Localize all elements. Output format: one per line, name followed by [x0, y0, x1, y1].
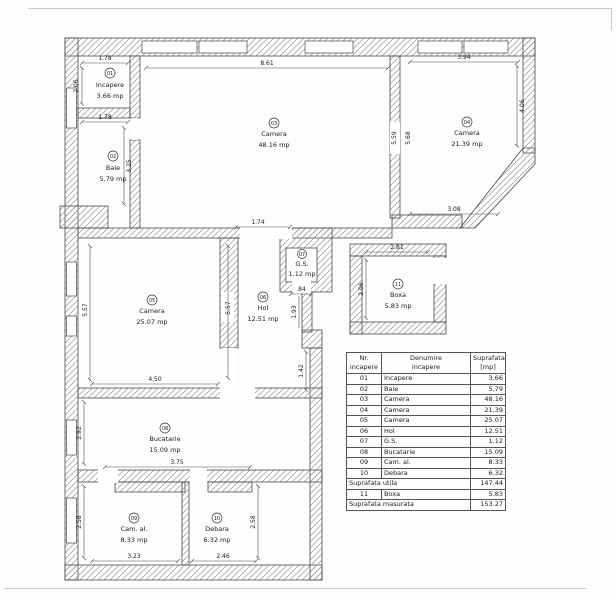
cell-name: Boxa — [382, 489, 471, 500]
dim-line — [80, 66, 84, 106]
total-utila-label: Suprafata utila — [347, 479, 471, 490]
cell-nr: 01 — [347, 374, 382, 385]
cam-al-door-opening — [98, 469, 118, 483]
wall-diagonal — [460, 148, 535, 228]
dim-label: 2.58 — [250, 515, 257, 529]
window — [67, 88, 77, 128]
room-label-hol: 06 Hol 12.51 mp — [247, 292, 278, 323]
room-name: Boxa — [390, 291, 406, 299]
wall-boxa-bottom — [350, 322, 446, 334]
room-area: 5.79 mp — [100, 175, 127, 183]
camera05-door-opening — [222, 348, 236, 388]
cell-name: Camera — [382, 395, 471, 406]
cell-name: Incapere — [382, 374, 471, 385]
dim-label: 5.59 — [391, 131, 398, 145]
cell-area: 8.33 — [471, 458, 506, 469]
wall-below-gs — [302, 292, 312, 332]
table-row: 05 Camera 25.07 — [347, 416, 506, 427]
cell-name: Hol — [382, 426, 471, 437]
room-name: Camera — [139, 307, 165, 315]
wall-camera04-bottom — [392, 215, 462, 228]
dim-label: 3.75 — [170, 459, 184, 466]
dim-label: 3.23 — [127, 553, 141, 560]
room-name: Baie — [106, 164, 120, 172]
window — [67, 316, 77, 336]
room-number: 01 — [107, 71, 113, 77]
dim-label: 1.42 — [298, 364, 305, 378]
room-area: 5.83 mp — [385, 302, 412, 310]
window — [67, 498, 77, 543]
table-header-row: Nr. incapere Denumire incapere Suprafata… — [347, 353, 506, 374]
room-area: 12.51 mp — [247, 315, 278, 323]
cell-name: Bucatarie — [382, 447, 471, 458]
window — [464, 41, 508, 53]
room-label-camera03: 03 Camera 48.16 mp — [258, 118, 289, 149]
table-row: 02 Baie 5.79 — [347, 384, 506, 395]
wall-step — [302, 330, 322, 348]
dim-label: .84 — [296, 286, 306, 293]
cell-nr: 08 — [347, 447, 382, 458]
header-nr: Nr. incapere — [347, 353, 382, 374]
wall-bucatarie-top — [78, 388, 322, 398]
dim-label: 5.57 — [82, 303, 89, 317]
dim-label: 1.93 — [291, 305, 298, 319]
room-name: Camera — [261, 130, 287, 138]
room-number: 04 — [464, 120, 470, 126]
wall-incapere-right — [130, 56, 140, 118]
table-row: 10 Debara 6.32 — [347, 468, 506, 479]
cell-area: 6.32 — [471, 468, 506, 479]
room-name: Incapere — [96, 81, 124, 89]
room-area: 1.12 mp — [289, 270, 316, 278]
dim-label: 3.25 — [126, 159, 133, 173]
dim-label: 4.06 — [519, 99, 526, 113]
wall-bottom — [65, 565, 322, 580]
total-masurata-value: 153.27 — [471, 500, 506, 511]
room-label-boxa: 11 Boxa 5.83 mp — [385, 279, 412, 310]
cell-area: 48.16 — [471, 395, 506, 406]
boxa-door-opening — [433, 258, 447, 284]
cell-name: Cam. al. — [382, 458, 471, 469]
dim-label: 2.46 — [216, 553, 230, 560]
wall-right-lower — [310, 348, 322, 580]
room-number: 10 — [214, 516, 220, 522]
room-number: 02 — [110, 154, 116, 160]
room-area: 3.66 mp — [97, 92, 124, 100]
room-number: 03 — [271, 121, 277, 127]
table-row-boxa: 11 Boxa 5.83 — [347, 489, 506, 500]
dim-label: 2.58 — [76, 515, 83, 529]
room-area: 25.07 mp — [136, 318, 167, 326]
cell-area: 1.12 — [471, 437, 506, 448]
dim-label: 2.81 — [390, 244, 404, 251]
room-label-incapere: 01 Incapere 3.66 mp — [96, 68, 124, 100]
cell-nr: 10 — [347, 468, 382, 479]
cell-name: Baie — [382, 384, 471, 395]
dim-label: 1.74 — [251, 219, 265, 226]
cell-area: 5.79 — [471, 384, 506, 395]
window — [67, 262, 77, 296]
room-label-cam-al: 09 Cam. al. 8.33 mp — [121, 513, 148, 544]
cell-area: 25.07 — [471, 416, 506, 427]
wall-pier-left — [60, 206, 108, 228]
closet-block-debara — [208, 482, 252, 492]
wall-cam-al-debara — [182, 482, 189, 565]
room-label-camera04: 04 Camera 21.39 mp — [451, 117, 482, 148]
cell-name: Debara — [382, 468, 471, 479]
cell-name: Camera — [382, 416, 471, 427]
cell-nr: 04 — [347, 405, 382, 416]
room-number: 07 — [299, 252, 305, 258]
room-label-baie: 02 Baie 5.79 mp — [100, 151, 127, 183]
window — [142, 41, 197, 53]
room-label-bucatarie: 08 Bucatarie 15.09 mp — [149, 423, 180, 454]
room-number: 09 — [131, 516, 137, 522]
wall-baie-right — [130, 140, 140, 228]
room-name: Bucatarie — [149, 435, 180, 443]
wall-right-upper — [523, 38, 535, 153]
table-total-row-utila: Suprafata utila 147.44 — [347, 479, 506, 490]
floor-plan: 1.78 2.06 1.78 3.25 8.61 3.94 4.06 3.08 … — [0, 0, 616, 600]
cell-nr: 06 — [347, 426, 382, 437]
hol-bucatarie-opening — [220, 387, 255, 399]
dim-label: 2.06 — [358, 282, 365, 296]
room-name: G.S. — [295, 260, 308, 268]
room-name: Debara — [205, 525, 229, 533]
baie-door-opening — [132, 118, 138, 140]
header-suprafata: Suprafata [mp] — [471, 353, 506, 374]
dim-label: 2.06 — [73, 79, 80, 93]
debara-door-opening — [190, 469, 207, 483]
room-area: 21.39 mp — [451, 140, 482, 148]
table-total-row-masurata: Suprafata masurata 153.27 — [347, 500, 506, 511]
cell-area: 15.09 — [471, 447, 506, 458]
cell-nr: 02 — [347, 384, 382, 395]
room-number: 06 — [260, 295, 266, 301]
cell-nr: 05 — [347, 416, 382, 427]
cell-nr: 11 — [347, 489, 382, 500]
cell-name: G.S. — [382, 437, 471, 448]
room-area-table: Nr. incapere Denumire incapere Suprafata… — [346, 352, 506, 511]
dim-label: 1.78 — [98, 55, 112, 62]
header-denumire: Denumire incapere — [382, 353, 471, 374]
table-row: 08 Bucatarie 15.09 — [347, 447, 506, 458]
room-area: 8.33 mp — [121, 536, 148, 544]
dim-label: 3.94 — [457, 54, 471, 61]
closet-block-cam-al — [115, 482, 185, 492]
dim-label: 8.61 — [260, 60, 274, 67]
table-row: 03 Camera 48.16 — [347, 395, 506, 406]
table-row: 06 Hol 12.51 — [347, 426, 506, 437]
cell-area: 5.83 — [471, 489, 506, 500]
room-name: Hol — [258, 304, 269, 312]
hol-camera03-opening — [240, 227, 292, 239]
dim-label: 5.57 — [225, 301, 232, 315]
window — [305, 41, 353, 53]
room-area: 6.32 mp — [204, 536, 231, 544]
cell-nr: 07 — [347, 437, 382, 448]
scanned-floor-plan-page: 1.78 2.06 1.78 3.25 8.61 3.94 4.06 3.08 … — [0, 0, 616, 600]
window — [418, 41, 462, 53]
wall-mid-horizontal — [78, 228, 392, 238]
dim-label: 2.92 — [76, 426, 83, 440]
room-name: Cam. al. — [121, 525, 148, 533]
room-number: 11 — [395, 282, 401, 288]
room-label-debara: 10 Debara 6.32 mp — [204, 513, 231, 544]
table-row: 04 Camera 21.39 — [347, 405, 506, 416]
dim-label: 5.68 — [405, 131, 412, 145]
room-number: 05 — [149, 298, 155, 304]
room-number: 08 — [162, 426, 168, 432]
dim-label: 4.50 — [148, 376, 162, 383]
room-area: 48.16 mp — [258, 141, 289, 149]
cell-nr: 03 — [347, 395, 382, 406]
cell-area: 21.39 — [471, 405, 506, 416]
cell-area: 12.51 — [471, 426, 506, 437]
room-name: Camera — [454, 129, 480, 137]
total-masurata-label: Suprafata masurata — [347, 500, 471, 511]
room-label-camera05: 05 Camera 25.07 mp — [136, 295, 167, 326]
dim-label: 1.78 — [98, 114, 112, 121]
table-row: 07 G.S. 1.12 — [347, 437, 506, 448]
dim-label: 3.08 — [447, 206, 461, 213]
cell-name: Camera — [382, 405, 471, 416]
window — [199, 41, 247, 53]
window — [67, 420, 77, 455]
room-area: 15.09 mp — [149, 446, 180, 454]
table-row: 09 Cam. al. 8.33 — [347, 458, 506, 469]
table-row: 01 Incapere 3.66 — [347, 374, 506, 385]
cell-area: 3.66 — [471, 374, 506, 385]
total-utila-value: 147.44 — [471, 479, 506, 490]
cell-nr: 09 — [347, 458, 382, 469]
